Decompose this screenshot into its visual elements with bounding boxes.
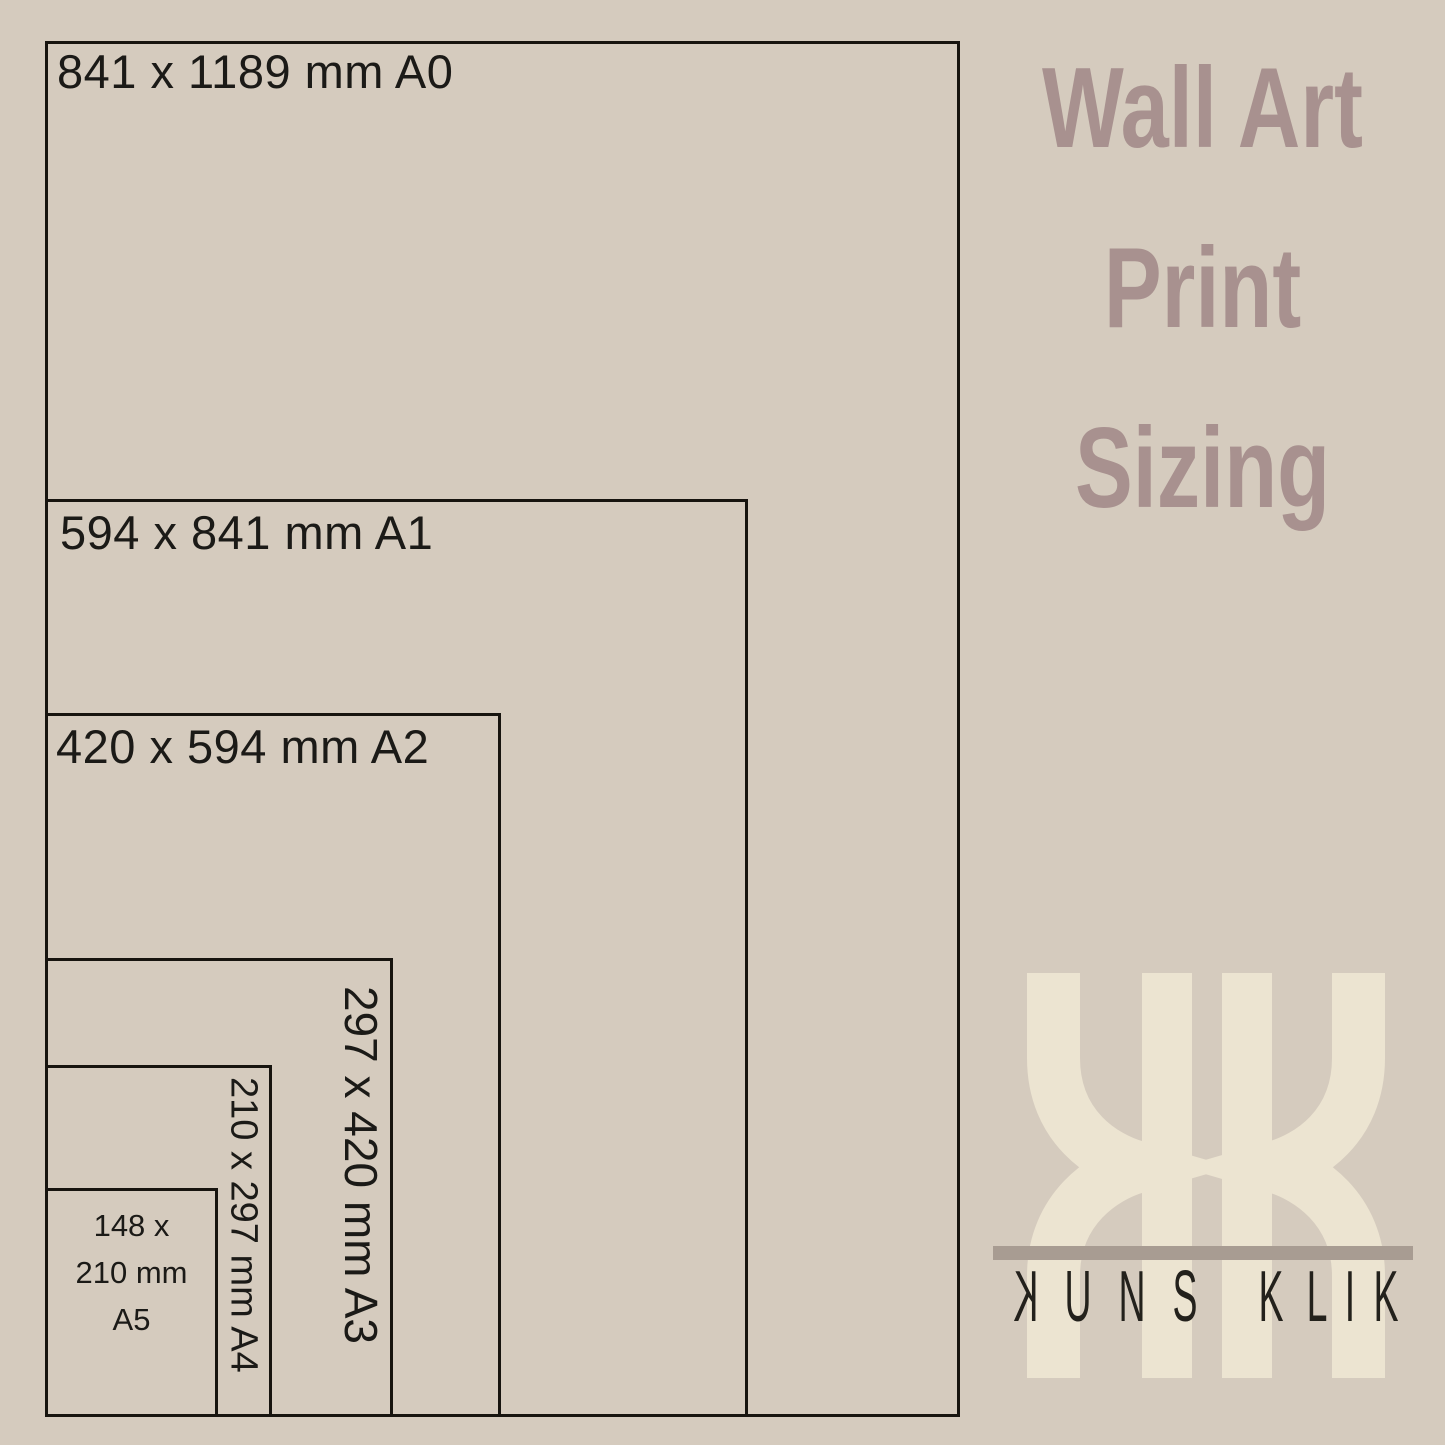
brand-letter-u: U — [1065, 1261, 1092, 1333]
size-label-a5-line2: 210 mm — [48, 1249, 215, 1296]
poster-title: Wall Art Print Sizing — [960, 19, 1445, 559]
brand-name: K U N S K L I K — [1002, 1261, 1410, 1337]
poster-title-line3: Sizing — [1018, 379, 1387, 559]
brand-letter-s: S — [1172, 1261, 1197, 1333]
poster: 841 x 1189 mm A0 594 x 841 mm A1 420 x 5… — [0, 0, 1445, 1445]
size-label-a5-line3: A5 — [48, 1296, 215, 1343]
size-label-a4: 210 x 297 mm A4 — [221, 1077, 265, 1373]
poster-title-line2: Print — [1018, 199, 1387, 379]
brand-letter-n: N — [1119, 1261, 1146, 1333]
size-label-a5-line1: 148 x — [48, 1202, 215, 1249]
brand-letter-k1: K — [1014, 1261, 1039, 1333]
brand-letter-k2: K — [1259, 1261, 1284, 1333]
brand-letter-i: I — [1344, 1261, 1354, 1333]
size-label-a1: 594 x 841 mm A1 — [60, 505, 433, 561]
brand-letter-k3: K — [1373, 1261, 1398, 1333]
size-label-a5: 148 x 210 mm A5 — [48, 1202, 215, 1343]
poster-title-line1: Wall Art — [1018, 19, 1387, 199]
size-label-a0: 841 x 1189 mm A0 — [57, 44, 453, 100]
brand-letter-l: L — [1307, 1261, 1328, 1333]
size-label-a2: 420 x 594 mm A2 — [56, 719, 429, 775]
size-label-a3: 297 x 420 mm A3 — [334, 986, 387, 1344]
